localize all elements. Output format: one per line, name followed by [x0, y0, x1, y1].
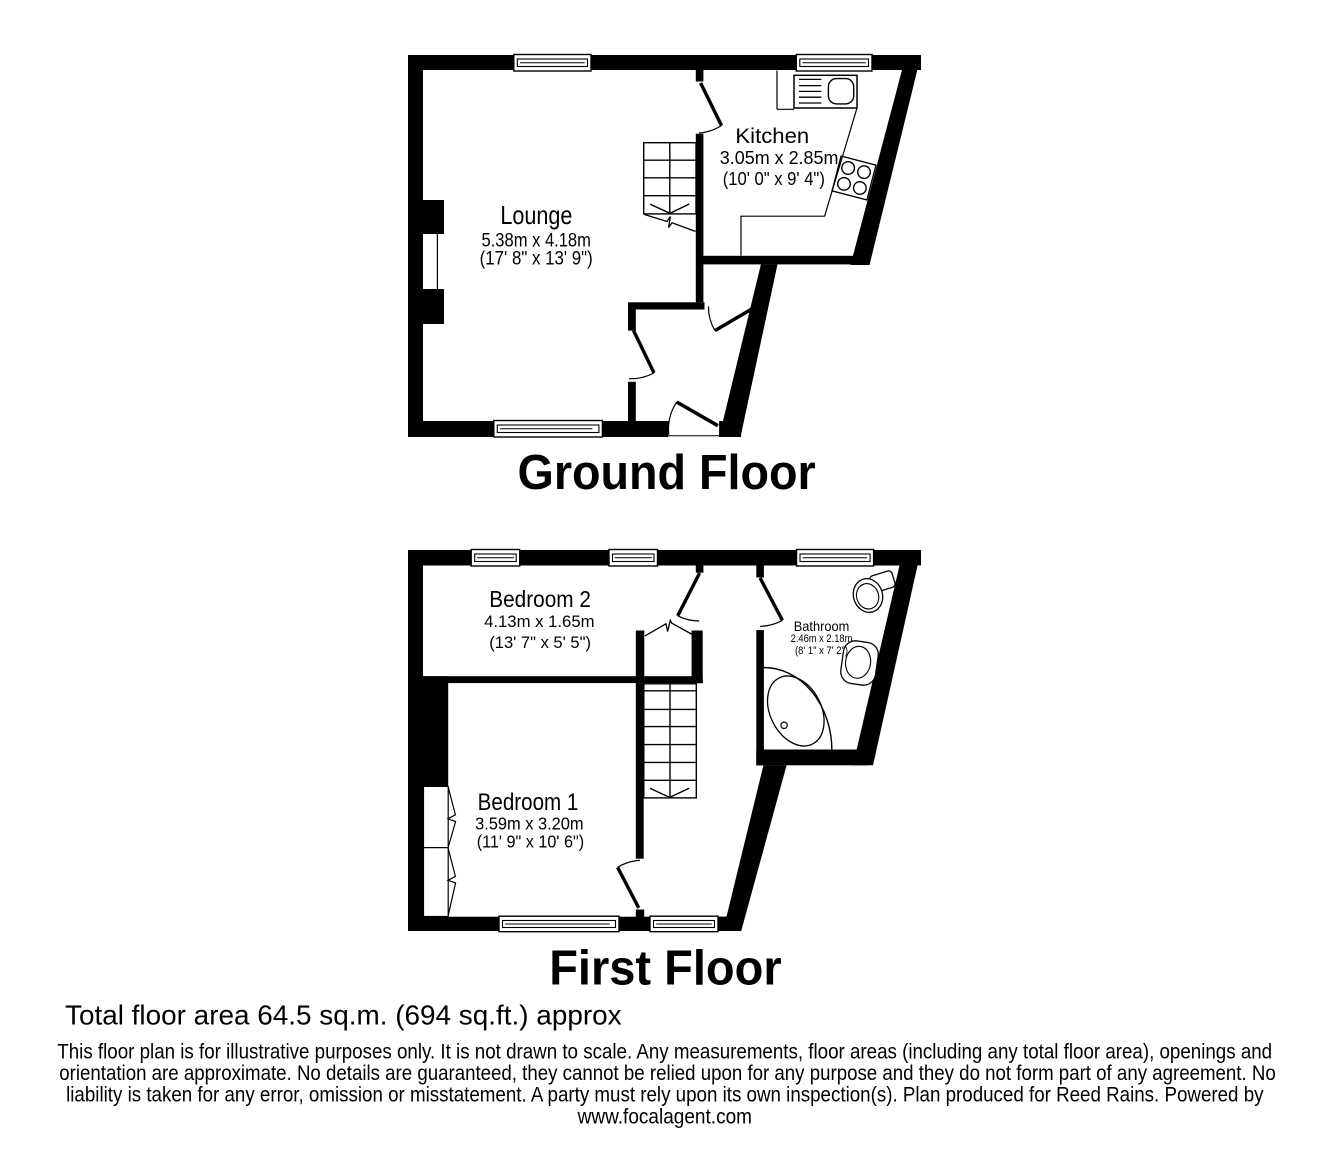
svg-text:4.13m x 1.65m: 4.13m x 1.65m — [484, 612, 594, 631]
svg-text:Ground Floor: Ground Floor — [518, 446, 816, 500]
svg-text:(13' 7" x 5' 5"): (13' 7" x 5' 5") — [489, 633, 591, 652]
svg-text:Lounge: Lounge — [500, 201, 572, 230]
svg-text:This floor plan is for illustr: This floor plan is for illustrative purp… — [57, 1040, 1272, 1064]
svg-text:Total floor area 64.5 sq.m. (6: Total floor area 64.5 sq.m. (694 sq.ft.)… — [65, 999, 622, 1030]
svg-text:Kitchen: Kitchen — [735, 123, 809, 147]
svg-text:liability is taken for any err: liability is taken for any error, omissi… — [66, 1084, 1264, 1108]
svg-text:3.59m x 3.20m: 3.59m x 3.20m — [475, 813, 583, 834]
svg-text:Bathroom: Bathroom — [794, 619, 849, 635]
svg-text:(8' 1" x 7' 2"): (8' 1" x 7' 2") — [795, 645, 848, 657]
svg-text:(10' 0" x 9' 4"): (10' 0" x 9' 4") — [723, 168, 825, 189]
svg-text:First Floor: First Floor — [549, 941, 782, 996]
svg-text:(11' 9" x 10' 6"): (11' 9" x 10' 6") — [477, 832, 584, 852]
svg-text:(17' 8" x 13' 9"): (17' 8" x 13' 9") — [480, 246, 593, 269]
svg-text:Bedroom 1: Bedroom 1 — [478, 789, 579, 816]
svg-text:www.focalagent.com: www.focalagent.com — [577, 1105, 752, 1128]
svg-text:3.05m x 2.85m: 3.05m x 2.85m — [720, 147, 839, 168]
svg-text:orientation are approximate. N: orientation are approximate. No details … — [59, 1062, 1275, 1086]
svg-text:Bedroom 2: Bedroom 2 — [489, 586, 591, 612]
svg-text:2.46m x 2.18m: 2.46m x 2.18m — [791, 633, 853, 645]
